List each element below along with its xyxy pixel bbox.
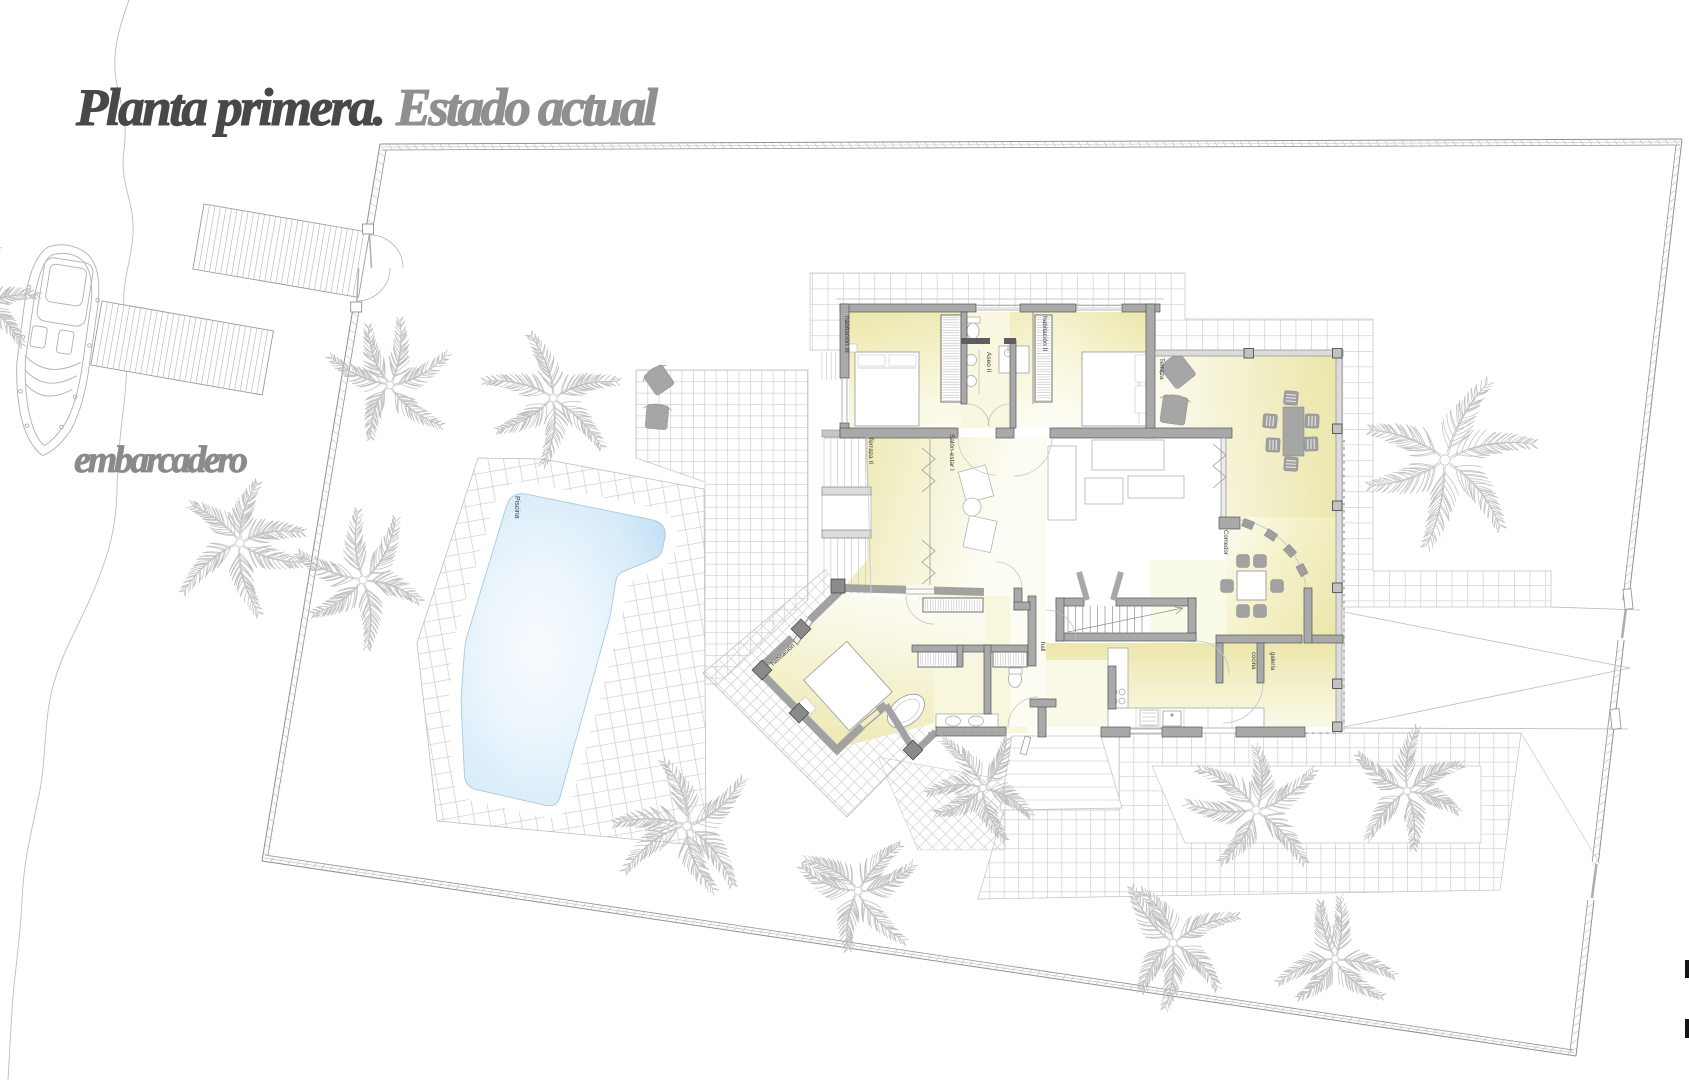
svg-text:Estado actual: Estado actual xyxy=(395,79,658,137)
svg-text:Aseo II: Aseo II xyxy=(985,352,992,372)
svg-text:galería: galería xyxy=(1269,652,1275,671)
svg-text:Piscina: Piscina xyxy=(513,496,520,519)
svg-text:Salón-estar I: Salón-estar I xyxy=(948,434,955,471)
svg-text:embarcadero: embarcadero xyxy=(74,439,248,481)
svg-text:habitación III: habitación III xyxy=(843,316,850,353)
svg-text:hall: hall xyxy=(1039,642,1045,651)
svg-text:habitación II: habitación II xyxy=(1041,316,1048,351)
svg-text:Terraza: Terraza xyxy=(1158,358,1165,380)
svg-text:cocina: cocina xyxy=(1250,652,1256,670)
svg-text:Terraza II: Terraza II xyxy=(867,437,874,464)
svg-text:Comedor: Comedor xyxy=(1222,530,1228,555)
svg-text:Planta primera.: Planta primera. xyxy=(75,79,386,137)
